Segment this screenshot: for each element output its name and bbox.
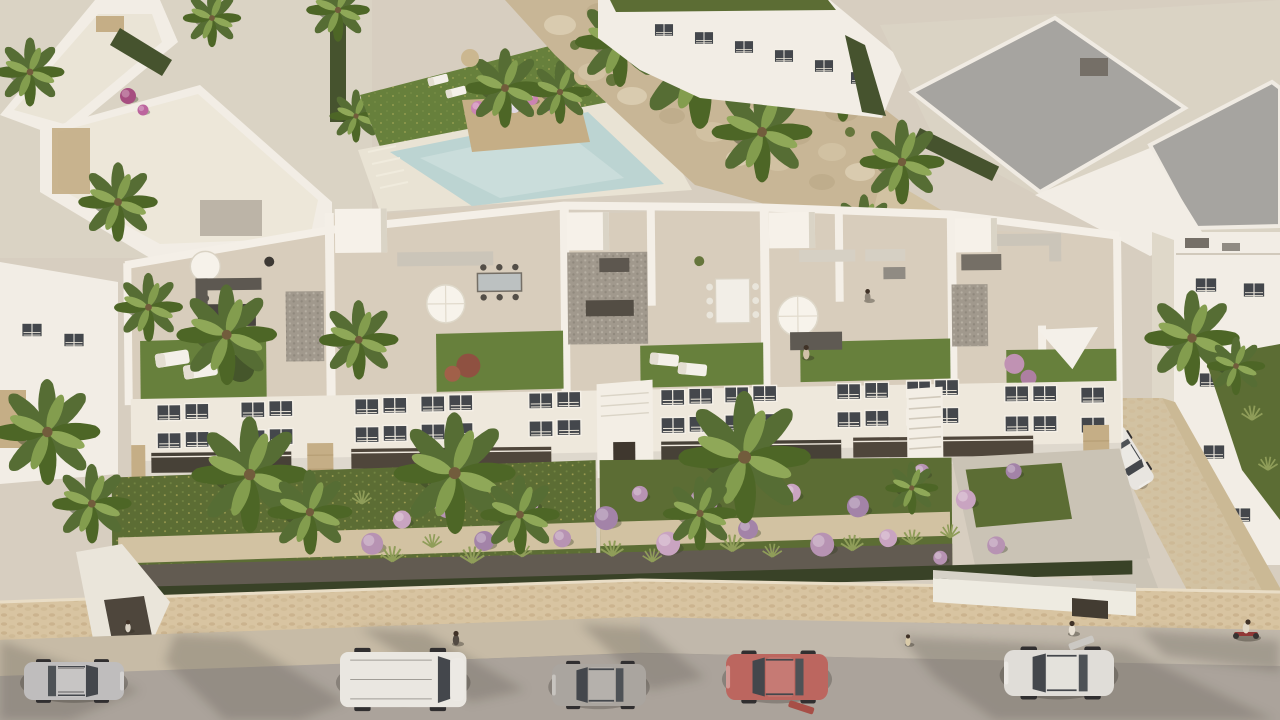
aerial-render <box>0 0 1280 720</box>
sunlight-tint <box>0 0 1280 720</box>
aerial-render-stage <box>0 0 1280 720</box>
